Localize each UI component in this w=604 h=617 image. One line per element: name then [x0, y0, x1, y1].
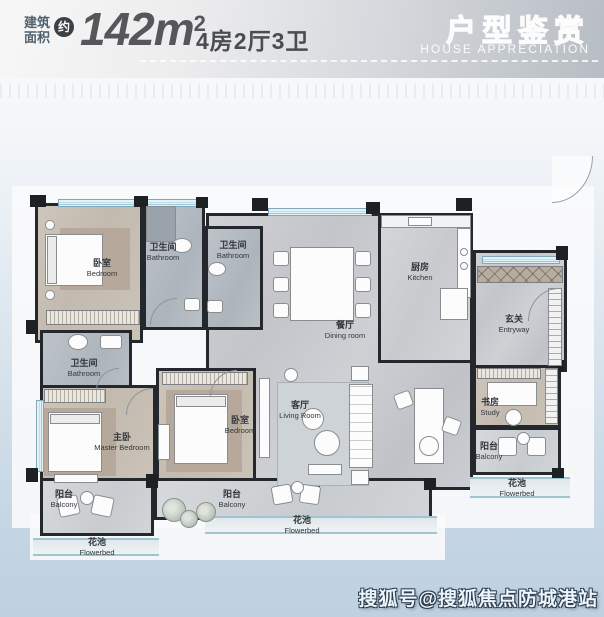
watermark: 搜狐号@搜狐焦点防城港站: [358, 584, 598, 611]
dashed-divider: [140, 60, 598, 62]
area-value: 142m2: [80, 2, 205, 56]
wardrobe: [44, 389, 106, 403]
floor-lamp: [284, 368, 298, 382]
wall-pillar: [456, 198, 472, 211]
dining-chair: [273, 303, 289, 318]
wall-pillar: [366, 202, 380, 214]
room-label-bathroom-3: 卫生间Bathroom: [68, 358, 101, 378]
room-label-bathroom-2: 卫生间Bathroom: [217, 240, 250, 260]
desk: [158, 424, 170, 460]
room-label-master-bedroom: 主卧Master Bedroom: [94, 432, 149, 452]
wall-pillar: [252, 198, 268, 211]
room-label-bedroom-top: 卧室Bedroom: [87, 258, 117, 278]
bed-pillow: [176, 396, 226, 407]
layout-spec: 4房2厅3卫: [196, 22, 309, 56]
approx-badge: 约: [54, 17, 74, 37]
toilet: [68, 334, 88, 350]
room-label-living: 客厅Living Room: [279, 400, 321, 420]
wall-pillar: [556, 246, 568, 260]
shower: [146, 206, 176, 242]
tea-tray: [419, 436, 439, 456]
room-label-entryway: 玄关Entryway: [499, 314, 530, 334]
room-label-balcony-right: 阳台Balcony: [476, 441, 503, 461]
window: [58, 199, 140, 207]
stove-burner: [460, 248, 468, 256]
wall-pillar: [30, 195, 46, 207]
entry-cabinet: [477, 266, 563, 283]
floorplan-page: 建筑 面积 约 142m2 4房2厅3卫 户型鉴赏 HOUSE APPRECIA…: [0, 0, 604, 617]
window: [36, 400, 44, 472]
area-label: 建筑 面积: [24, 16, 50, 46]
room-label-balcony-center: 阳台Balcony: [219, 489, 246, 509]
area-number: 142: [80, 3, 154, 55]
room-label-flowerbed-center: 花池Flowerbed: [284, 515, 319, 535]
toilet: [208, 262, 226, 276]
room-label-balcony-left: 阳台Balcony: [51, 489, 78, 509]
wall-pillar: [26, 468, 38, 482]
area-unit: m: [154, 3, 194, 55]
dining-chair: [355, 303, 371, 318]
bed-pillow: [47, 236, 57, 284]
wall-pillar: [552, 468, 564, 478]
sink: [184, 298, 200, 311]
room-label-kitchen: 厨房Kitchen: [407, 262, 432, 282]
room-label-flowerbed-right: 花池Flowerbed: [499, 478, 534, 498]
side-table: [291, 481, 304, 494]
coffee-table: [314, 430, 340, 456]
stove-burner: [460, 262, 468, 270]
header-banner: 建筑 面积 约 142m2 4房2厅3卫 户型鉴赏 HOUSE APPRECIA…: [0, 0, 604, 78]
nightstand-lamp: [45, 290, 55, 300]
sink: [100, 335, 122, 349]
sink: [207, 300, 223, 313]
dining-chair: [273, 251, 289, 266]
wall-pillar: [146, 474, 158, 488]
room-label-bedroom-2: 卧室Bedroom: [225, 415, 255, 435]
tv-bench: [308, 464, 342, 475]
tv-cabinet: [259, 378, 270, 458]
dining-chair: [355, 277, 371, 292]
desk-chair: [505, 409, 522, 426]
wall-pillar: [196, 197, 208, 208]
side-table: [80, 491, 94, 505]
bed-bench: [54, 474, 98, 483]
room-label-study: 书房Study: [480, 397, 499, 417]
side-table: [517, 432, 530, 445]
window: [482, 256, 560, 264]
dining-chair: [273, 277, 289, 292]
wardrobe: [46, 310, 140, 325]
bed-pillow: [50, 414, 100, 424]
room-label-bathroom-1: 卫生间Bathroom: [147, 242, 180, 262]
dining-chair: [355, 251, 371, 266]
sofa: [349, 384, 373, 468]
nightstand-lamp: [45, 220, 55, 230]
fridge: [440, 288, 468, 320]
side-table: [351, 366, 369, 381]
study-shelf: [477, 368, 541, 379]
bookshelf: [545, 368, 558, 424]
plant: [196, 502, 216, 522]
flowerbed-center: [205, 516, 437, 534]
area-label-line2: 面积: [24, 31, 50, 46]
room-label-dining: 餐厅Dining room: [325, 320, 365, 340]
room-label-flowerbed-left: 花池Flowerbed: [79, 537, 114, 557]
tick-pattern: [0, 84, 604, 98]
area-label-line1: 建筑: [24, 16, 50, 31]
side-table: [351, 470, 369, 485]
page-title-en: HOUSE APPRECIATION: [420, 42, 590, 56]
kitchen-sink: [408, 217, 432, 226]
wall-pillar: [26, 320, 38, 334]
window: [268, 208, 372, 216]
dining-table: [290, 247, 354, 321]
wall-pillar: [424, 478, 436, 490]
